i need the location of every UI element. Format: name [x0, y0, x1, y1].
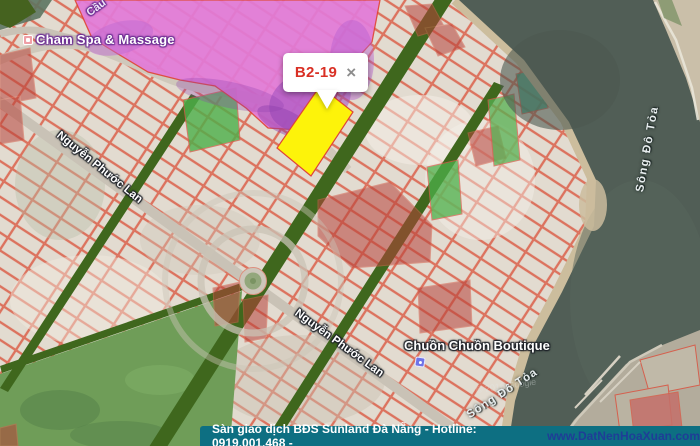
parcel-id-label: B2-19: [295, 64, 337, 81]
parcel-info-popup: B2-19 ×: [283, 53, 368, 92]
spa-poi-icon[interactable]: [23, 35, 33, 45]
footer-bar: Sàn giao dịch BĐS Sunland Đà Nẵng - Hotl…: [200, 426, 700, 446]
footer-website-link[interactable]: www.DatNenHoaXuan.com: [547, 429, 700, 443]
popup-close-icon[interactable]: ×: [346, 64, 356, 81]
popup-pointer: [316, 90, 338, 109]
map-screenshot: Cầu Cham Spa & Massage Nguyễn Phước Lan …: [0, 0, 700, 446]
boutique-poi-icon[interactable]: [414, 356, 425, 367]
footer-text: Sàn giao dịch BĐS Sunland Đà Nẵng - Hotl…: [212, 422, 542, 446]
